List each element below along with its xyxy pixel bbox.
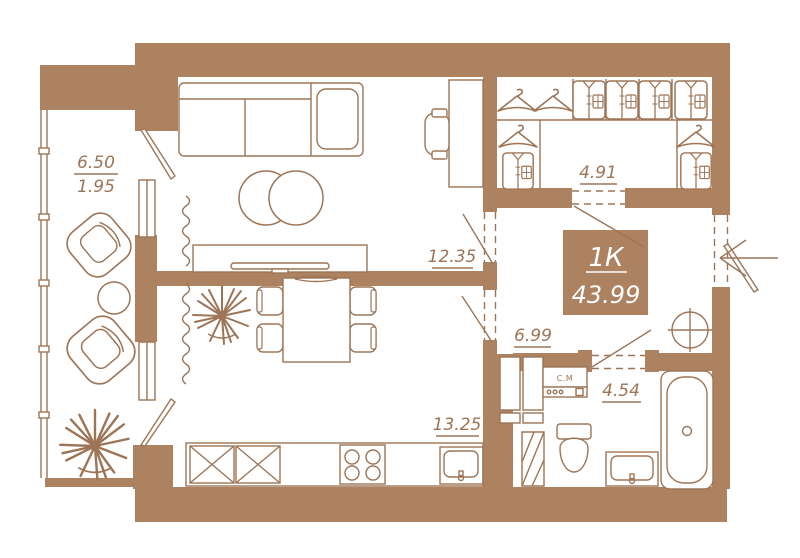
- room-kitchen: 13.25: [183, 277, 484, 487]
- sofa: [179, 83, 363, 156]
- duct-shaft: [522, 432, 544, 486]
- circle-cross-symbol: [668, 308, 712, 352]
- washing-machine: С.М: [543, 367, 587, 397]
- plant-icon: [193, 286, 250, 344]
- shirt-icon: [681, 153, 711, 189]
- bathroom-sink: [606, 452, 658, 486]
- desk-chair: [425, 113, 449, 155]
- shirt-icon: [606, 81, 638, 119]
- kitchen-counter: [186, 443, 483, 486]
- curtain-squiggle: [183, 284, 190, 384]
- shirt-icon: [675, 81, 707, 119]
- armchair-icon: [61, 310, 142, 391]
- entrance-door: [715, 215, 759, 292]
- hanger-icon: [498, 89, 536, 111]
- hallway-area-label: 6.99: [514, 326, 552, 346]
- unit-total-area: 43.99: [572, 281, 641, 309]
- door-leaf: [592, 330, 651, 367]
- shirt-icon: [503, 153, 533, 189]
- room-living: 12.35: [179, 80, 483, 273]
- side-table: [98, 282, 130, 314]
- floor-plan-page: 6.50 1.95 12.3: [0, 0, 800, 558]
- unit-type-label: 1К: [588, 243, 625, 273]
- balcony-area-label: 6.50: [77, 153, 115, 173]
- room-balcony: 6.50 1.95: [39, 110, 141, 480]
- hanger-icon: [534, 89, 572, 111]
- tv-stand: [193, 245, 367, 273]
- coffee-table: [239, 171, 323, 225]
- tv: [231, 263, 329, 269]
- balcony-window: [39, 110, 49, 478]
- desk: [425, 80, 483, 187]
- bathtub: [661, 371, 713, 489]
- shirt-icon: [639, 81, 671, 119]
- toilet: [557, 424, 591, 472]
- curtain-squiggle: [183, 196, 190, 266]
- wardrobe-area-label: 4.91: [579, 163, 617, 183]
- armchair-icon: [61, 207, 137, 283]
- balcony-door-kitchen: [139, 342, 175, 446]
- hanger-icon: [499, 125, 537, 147]
- dining-table: [257, 277, 376, 363]
- plant-icon: [60, 410, 128, 480]
- door-leaf: [462, 296, 492, 342]
- kitchen-area-label: 13.25: [433, 415, 482, 435]
- bathroom-area-label: 4.54: [602, 381, 640, 401]
- floor-plan-svg: 6.50 1.95 12.3: [0, 0, 800, 558]
- balcony-door-living: [139, 129, 175, 237]
- room-wardrobe: 4.91: [497, 79, 715, 189]
- living-area-label: 12.35: [428, 247, 477, 267]
- washing-machine-label: С.М: [557, 374, 574, 383]
- room-bathroom: С.М 4.54: [522, 367, 713, 489]
- shirt-icon: [573, 81, 605, 119]
- balcony-reduced-area-label: 1.95: [77, 177, 115, 197]
- hanger-icon: [677, 125, 715, 147]
